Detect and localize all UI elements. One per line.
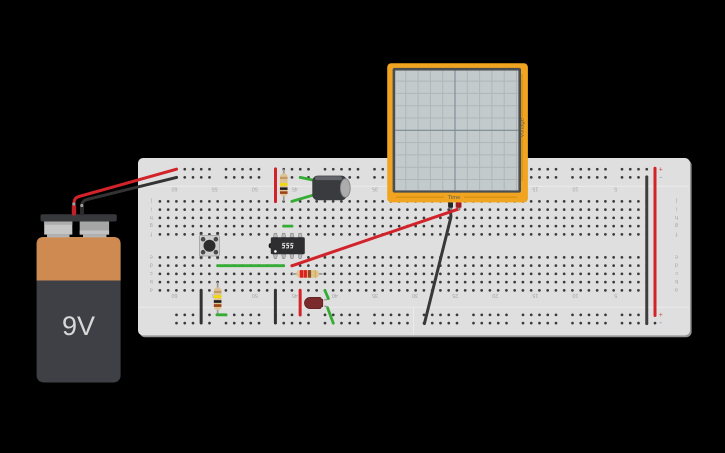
svg-text:d: d	[150, 262, 153, 268]
svg-text:j: j	[151, 197, 153, 203]
svg-text:5: 5	[614, 186, 617, 192]
svg-text:5: 5	[614, 292, 617, 298]
svg-text:50: 50	[252, 186, 258, 192]
svg-text:35: 35	[372, 186, 378, 192]
svg-text:e: e	[150, 253, 153, 259]
svg-text:45: 45	[292, 186, 298, 192]
svg-text:10: 10	[573, 186, 579, 192]
svg-text:20: 20	[492, 292, 498, 298]
svg-text:15: 15	[532, 292, 538, 298]
svg-text:25: 25	[452, 292, 458, 298]
svg-text:-: -	[659, 318, 662, 328]
svg-text:15: 15	[532, 186, 538, 192]
svg-text:Voltage: Voltage	[520, 118, 526, 137]
svg-text:60: 60	[172, 292, 178, 298]
svg-text:45: 45	[292, 292, 298, 298]
svg-text:c: c	[150, 270, 153, 276]
svg-text:10: 10	[573, 292, 579, 298]
svg-text:-: -	[659, 172, 662, 182]
svg-text:i: i	[151, 206, 152, 212]
svg-text:g: g	[675, 222, 678, 228]
svg-text:a: a	[150, 286, 153, 292]
svg-text:j: j	[676, 197, 678, 203]
svg-text:g: g	[150, 222, 153, 228]
svg-text:40: 40	[332, 292, 338, 298]
svg-text:9V: 9V	[62, 311, 95, 341]
svg-text:c: c	[675, 270, 678, 276]
svg-text:b: b	[150, 278, 153, 284]
svg-text:50: 50	[252, 292, 258, 298]
svg-text:35: 35	[372, 292, 378, 298]
svg-text:b: b	[675, 278, 678, 284]
svg-text:h: h	[675, 214, 678, 220]
svg-text:h: h	[150, 214, 153, 220]
svg-text:60: 60	[172, 186, 178, 192]
svg-text:30: 30	[412, 292, 418, 298]
svg-text:a: a	[675, 286, 678, 292]
svg-text:e: e	[675, 253, 678, 259]
svg-text:55: 55	[212, 186, 218, 192]
svg-text:i: i	[676, 206, 677, 212]
svg-text:d: d	[675, 262, 678, 268]
svg-text:Time: Time	[448, 195, 461, 201]
